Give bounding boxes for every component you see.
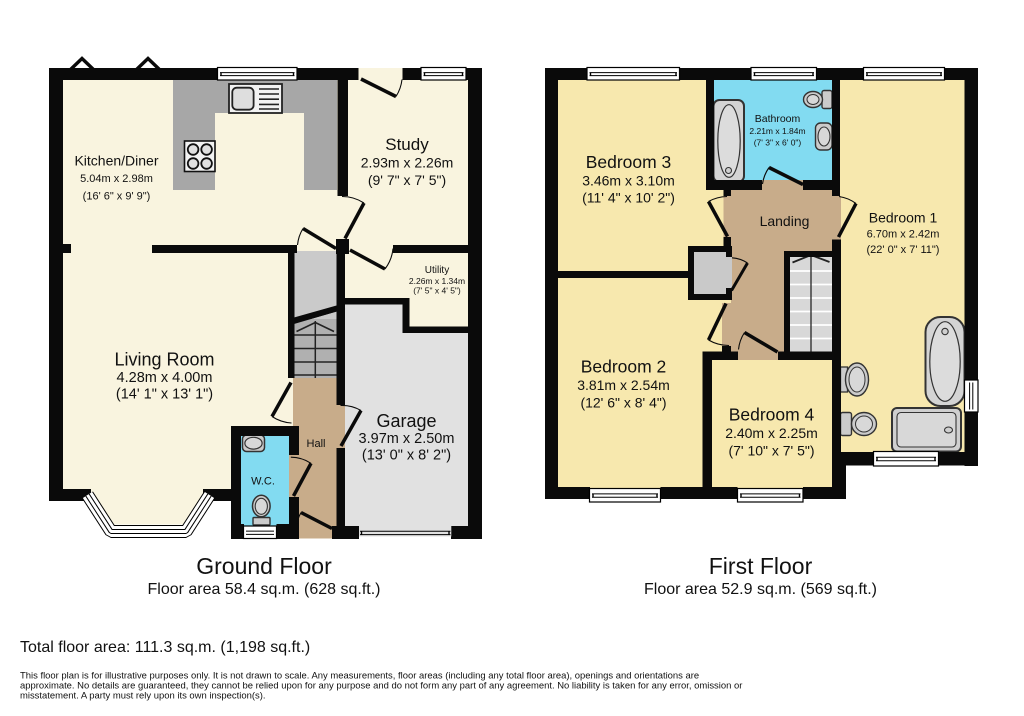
svg-text:Hall: Hall bbox=[307, 438, 326, 450]
svg-text:3.97m x 2.50m: 3.97m x 2.50m bbox=[359, 431, 455, 447]
svg-text:Study: Study bbox=[385, 135, 429, 154]
svg-text:2.21m x 1.84m: 2.21m x 1.84m bbox=[749, 126, 805, 136]
svg-text:(7' 3" x 6' 0"): (7' 3" x 6' 0") bbox=[754, 138, 802, 148]
svg-text:2.26m x 1.34m: 2.26m x 1.34m bbox=[409, 276, 465, 286]
svg-text:Total floor area: 111.3 sq.m.: Total floor area: 111.3 sq.m. (1,198 sq.… bbox=[20, 639, 310, 656]
svg-text:6.70m x 2.42m: 6.70m x 2.42m bbox=[867, 229, 940, 241]
svg-text:Floor area 52.9 sq.m. (569 sq.: Floor area 52.9 sq.m. (569 sq.ft.) bbox=[644, 581, 877, 598]
svg-text:(9' 7" x 7' 5"): (9' 7" x 7' 5") bbox=[368, 172, 446, 188]
svg-text:Ground Floor: Ground Floor bbox=[196, 553, 332, 579]
svg-text:5.04m x 2.98m: 5.04m x 2.98m bbox=[80, 173, 153, 185]
svg-text:Utility: Utility bbox=[425, 265, 449, 276]
svg-text:Bedroom 1: Bedroom 1 bbox=[869, 210, 938, 226]
svg-text:(12' 6" x 8' 4"): (12' 6" x 8' 4") bbox=[580, 395, 666, 411]
svg-text:(22' 0" x 7' 11"): (22' 0" x 7' 11") bbox=[867, 244, 940, 256]
svg-text:misstatement. A party must rel: misstatement. A party must rely upon its… bbox=[20, 691, 265, 702]
svg-text:(7' 5" x 4' 5"): (7' 5" x 4' 5") bbox=[413, 286, 461, 296]
svg-text:(7' 10" x 7' 5"): (7' 10" x 7' 5") bbox=[728, 443, 814, 459]
svg-text:2.93m x 2.26m: 2.93m x 2.26m bbox=[361, 155, 454, 171]
svg-text:Kitchen/Diner: Kitchen/Diner bbox=[74, 153, 158, 169]
svg-text:Bedroom 2: Bedroom 2 bbox=[581, 357, 667, 377]
svg-text:2.40m x 2.25m: 2.40m x 2.25m bbox=[725, 425, 818, 441]
svg-text:W.C.: W.C. bbox=[251, 476, 275, 488]
svg-text:Bedroom 3: Bedroom 3 bbox=[586, 152, 672, 172]
svg-text:Garage: Garage bbox=[376, 411, 436, 431]
svg-text:(11' 4" x 10' 2"): (11' 4" x 10' 2") bbox=[582, 190, 675, 206]
svg-text:(14' 1" x 13' 1"): (14' 1" x 13' 1") bbox=[116, 387, 213, 403]
svg-text:(13' 0" x 8' 2"): (13' 0" x 8' 2") bbox=[362, 448, 451, 464]
svg-text:4.28m x 4.00m: 4.28m x 4.00m bbox=[117, 370, 213, 386]
svg-text:(16' 6" x 9' 9"): (16' 6" x 9' 9") bbox=[83, 191, 151, 203]
svg-text:Floor area 58.4 sq.m. (628 sq.: Floor area 58.4 sq.m. (628 sq.ft.) bbox=[148, 581, 381, 598]
svg-text:Landing: Landing bbox=[760, 213, 810, 229]
svg-text:Bedroom 4: Bedroom 4 bbox=[729, 405, 815, 425]
svg-text:3.46m x 3.10m: 3.46m x 3.10m bbox=[582, 173, 675, 189]
svg-text:First Floor: First Floor bbox=[709, 553, 813, 579]
svg-text:Bathroom: Bathroom bbox=[755, 113, 801, 125]
svg-text:Living Room: Living Room bbox=[114, 350, 214, 370]
svg-text:3.81m x 2.54m: 3.81m x 2.54m bbox=[577, 377, 670, 393]
